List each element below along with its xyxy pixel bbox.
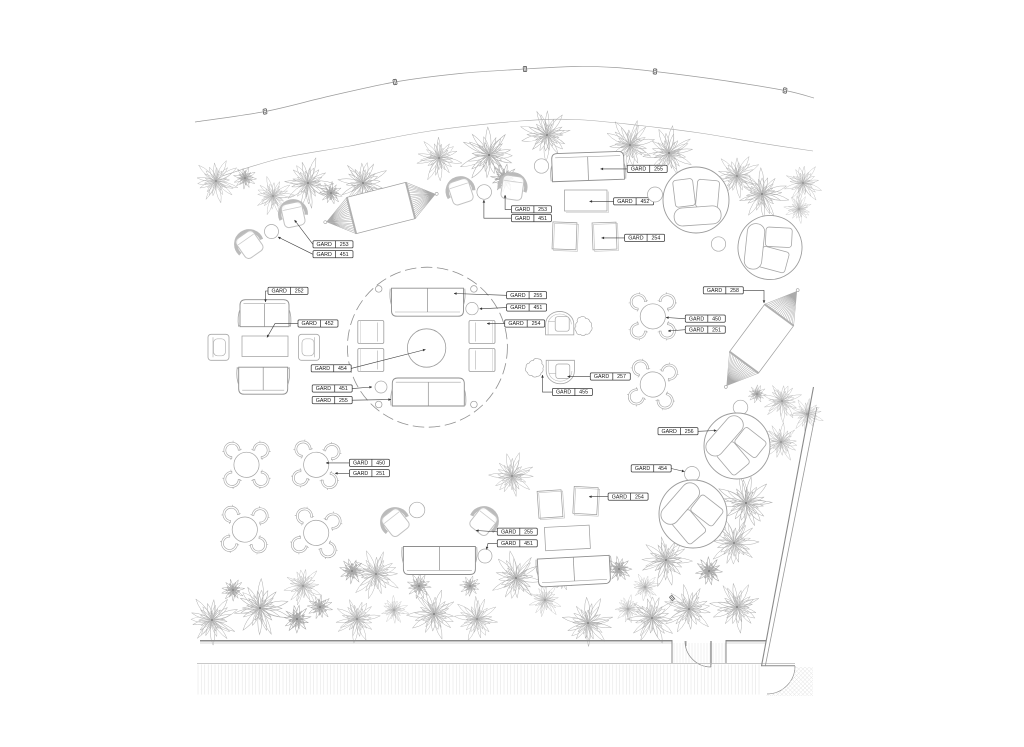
svg-text:251: 251 xyxy=(712,327,721,333)
svg-text:253: 253 xyxy=(340,242,349,248)
svg-text:255: 255 xyxy=(654,167,663,173)
svg-text:252: 252 xyxy=(295,289,304,295)
svg-text:254: 254 xyxy=(532,321,541,327)
svg-text:256: 256 xyxy=(685,429,694,435)
svg-text:253: 253 xyxy=(538,207,547,213)
svg-text:451: 451 xyxy=(339,386,348,392)
svg-text:452: 452 xyxy=(640,199,649,205)
svg-text:GARD: GARD xyxy=(510,293,525,299)
svg-text:451: 451 xyxy=(533,305,542,311)
svg-text:GARD: GARD xyxy=(501,529,516,535)
svg-text:450: 450 xyxy=(712,316,721,322)
svg-text:GARD: GARD xyxy=(635,466,650,472)
svg-text:GARD: GARD xyxy=(617,199,632,205)
svg-text:GARD: GARD xyxy=(317,242,332,248)
svg-text:GARD: GARD xyxy=(317,252,332,258)
svg-text:GARD: GARD xyxy=(510,305,525,311)
svg-text:GARD: GARD xyxy=(628,236,643,242)
svg-text:255: 255 xyxy=(339,398,348,404)
svg-text:451: 451 xyxy=(524,541,533,547)
svg-text:GARD: GARD xyxy=(501,541,516,547)
svg-text:454: 454 xyxy=(658,466,667,472)
svg-text:451: 451 xyxy=(538,216,547,222)
svg-text:GARD: GARD xyxy=(302,321,317,327)
svg-text:257: 257 xyxy=(617,374,626,380)
svg-text:255: 255 xyxy=(533,293,542,299)
svg-text:GARD: GARD xyxy=(689,327,704,333)
svg-text:GARD: GARD xyxy=(315,366,330,372)
svg-text:GARD: GARD xyxy=(707,288,722,294)
svg-text:254: 254 xyxy=(635,494,644,500)
svg-text:451: 451 xyxy=(340,252,349,258)
svg-text:251: 251 xyxy=(376,471,385,477)
svg-text:254: 254 xyxy=(651,236,660,242)
svg-text:GARD: GARD xyxy=(631,167,646,173)
svg-text:GARD: GARD xyxy=(353,471,368,477)
svg-text:GARD: GARD xyxy=(316,398,331,404)
svg-text:GARD: GARD xyxy=(272,289,287,295)
svg-text:GARD: GARD xyxy=(515,207,530,213)
svg-text:GARD: GARD xyxy=(316,386,331,392)
svg-text:454: 454 xyxy=(338,366,347,372)
svg-text:GARD: GARD xyxy=(594,374,609,380)
svg-text:452: 452 xyxy=(325,321,334,327)
svg-text:GARD: GARD xyxy=(689,316,704,322)
svg-text:GARD: GARD xyxy=(662,429,677,435)
svg-text:450: 450 xyxy=(376,461,385,467)
svg-text:GARD: GARD xyxy=(353,461,368,467)
svg-text:GARD: GARD xyxy=(556,390,571,396)
svg-text:GARD: GARD xyxy=(508,321,523,327)
svg-text:255: 255 xyxy=(524,529,533,535)
svg-text:GARD: GARD xyxy=(612,494,627,500)
svg-text:455: 455 xyxy=(579,390,588,396)
svg-text:258: 258 xyxy=(730,288,739,294)
svg-text:GARD: GARD xyxy=(515,216,530,222)
